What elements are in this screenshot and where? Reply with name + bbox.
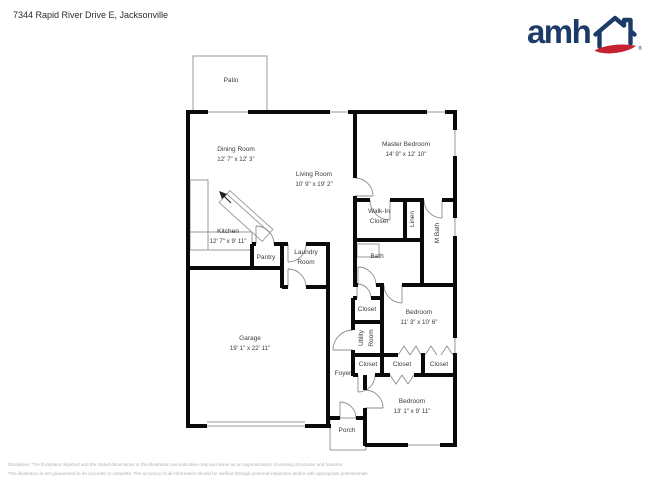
disclaimer-line-1: Disclaimer: The floorplans depicted and … [8, 460, 369, 469]
room-name: Closet [393, 360, 411, 370]
room-label-mbath: M Bath [433, 223, 443, 244]
room-name: Kitchen [210, 227, 247, 237]
room-label-closet3: Closet [393, 360, 411, 370]
room-name: Bath [370, 252, 383, 262]
bedroom3-door [365, 390, 383, 408]
room-name: Closet [359, 360, 377, 370]
room-name: Living Room [295, 170, 332, 180]
room-name: Walk-In Closet [361, 207, 397, 227]
room-dims: 11' 3" x 10' 6" [401, 318, 438, 328]
room-label-dining: Dining Room12' 7" x 12' 3" [217, 145, 255, 165]
room-label-bath: Bath [370, 252, 383, 262]
room-label-closet1: Closet [358, 305, 376, 315]
room-label-living: Living Room10' 9" x 19' 2" [295, 170, 332, 190]
bedroom2-door [384, 285, 402, 303]
laundry-door-bottom [288, 269, 306, 287]
room-label-patio: Patio [224, 76, 239, 86]
garage-door [207, 422, 305, 426]
room-label-utility: Utility Room [357, 323, 377, 353]
room-name: Porch [339, 426, 356, 436]
room-label-laundry: Laundry Room [288, 248, 324, 268]
utility-door [333, 330, 353, 350]
room-dims: 10' 9" x 19' 2" [295, 180, 332, 190]
room-label-closet4: Closet [430, 360, 448, 370]
closet1-door [357, 284, 371, 298]
kitchen-counter-left [190, 180, 208, 250]
room-dims: 14' 9" x 12' 10" [382, 150, 430, 160]
room-name: Utility Room [357, 323, 377, 353]
room-name: Pantry [257, 253, 276, 263]
room-label-porch: Porch [339, 426, 356, 436]
room-label-closet2: Closet [359, 360, 377, 370]
room-label-bedroom2: Bedroom11' 3" x 10' 6" [401, 308, 438, 328]
room-label-kitchen: Kitchen12' 7" x 9' 11" [210, 227, 247, 247]
room-name: Dining Room [217, 145, 255, 155]
room-name: Bedroom [401, 308, 438, 318]
room-label-garage: Garage19' 1" x 22' 11" [230, 334, 270, 354]
room-name: Closet [430, 360, 448, 370]
room-label-foyer: Foyer [335, 369, 352, 379]
mbath-door [424, 200, 442, 218]
disclaimer-text: Disclaimer: The floorplans depicted and … [8, 460, 369, 479]
room-name: Garage [230, 334, 270, 344]
room-dims: 12' 7" x 9' 11" [210, 237, 247, 247]
room-dims: 13' 1" x 9' 11" [394, 407, 431, 417]
front-door [340, 402, 356, 418]
room-label-linen: Linen [408, 211, 418, 227]
room-name: Laundry Room [288, 248, 324, 268]
room-name: Closet [358, 305, 376, 315]
room-label-walkin-closet: Walk-In Closet [361, 207, 397, 227]
room-name: Linen [408, 211, 418, 227]
room-label-bedroom3: Bedroom13' 1" x 9' 11" [394, 397, 431, 417]
floorplan-page: 7344 Rapid River Drive E, Jacksonville a… [0, 0, 650, 488]
room-dims: 19' 1" x 22' 11" [230, 344, 270, 354]
floorplan-drawing [0, 0, 650, 488]
room-label-master: Master Bedroom14' 9" x 12' 10" [382, 140, 430, 160]
room-label-pantry: Pantry [257, 253, 276, 263]
room-dims: 12' 7" x 12' 3" [217, 155, 255, 165]
bath-door [358, 267, 376, 285]
room-name: Bedroom [394, 397, 431, 407]
room-name: Foyer [335, 369, 352, 379]
room-name: Master Bedroom [382, 140, 430, 150]
disclaimer-line-2: This illustration is not guaranteed to b… [8, 469, 369, 478]
room-name: M Bath [433, 223, 443, 244]
master-door [355, 178, 373, 196]
room-name: Patio [224, 76, 239, 86]
